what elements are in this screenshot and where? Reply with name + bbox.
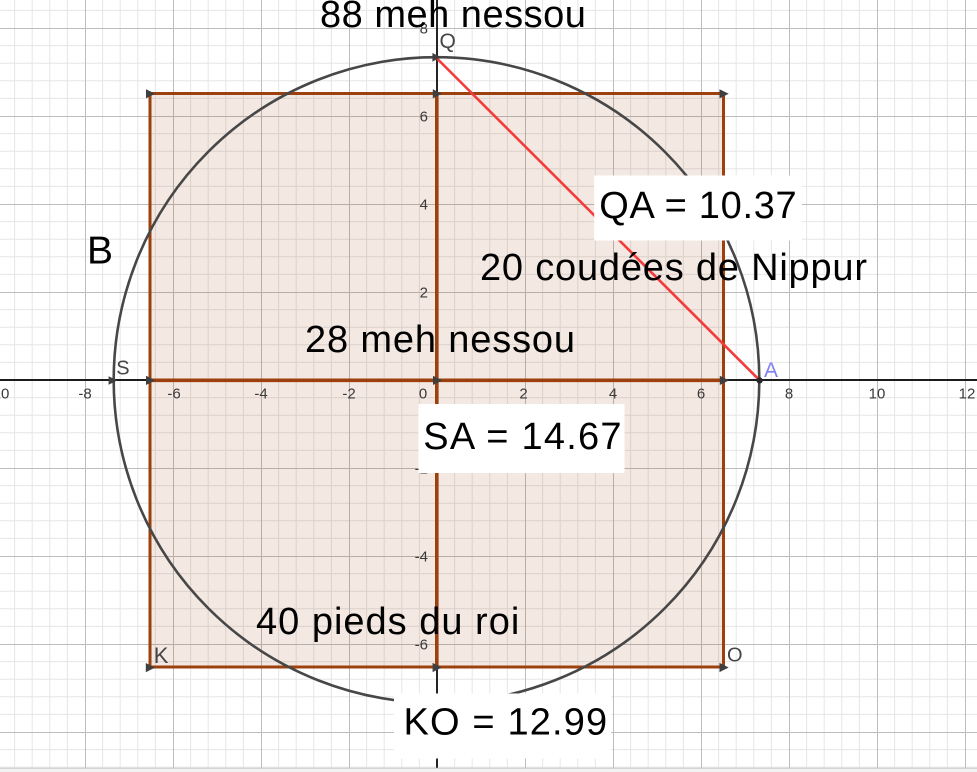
svg-text:40 pieds du roi: 40 pieds du roi — [256, 601, 520, 643]
svg-text:8: 8 — [785, 386, 793, 403]
svg-text:4: 4 — [609, 386, 617, 403]
svg-text:-8: -8 — [78, 386, 91, 403]
svg-text:-6: -6 — [167, 386, 180, 403]
svg-text:B: B — [87, 229, 113, 272]
svg-text:12: 12 — [959, 386, 976, 403]
svg-text:2: 2 — [420, 285, 428, 302]
svg-text:O: O — [727, 644, 743, 666]
svg-text:0: 0 — [419, 386, 427, 403]
svg-text:6: 6 — [697, 386, 705, 403]
svg-text:-4: -4 — [254, 386, 267, 403]
svg-text:28 meh nessou: 28 meh nessou — [305, 319, 576, 361]
svg-text:S: S — [116, 357, 129, 379]
svg-text:4: 4 — [420, 197, 428, 214]
svg-text:2: 2 — [519, 386, 527, 403]
svg-text:-2: -2 — [342, 386, 355, 403]
svg-text:A: A — [764, 359, 778, 382]
svg-text:-4: -4 — [415, 549, 428, 566]
svg-text:10: 10 — [869, 386, 886, 403]
svg-text:88 meh nessou: 88 meh nessou — [320, 0, 586, 36]
svg-text:6: 6 — [420, 109, 428, 126]
svg-text:K: K — [154, 643, 169, 668]
svg-text:QA = 10.37: QA = 10.37 — [599, 185, 797, 227]
svg-text:KO = 12.99: KO = 12.99 — [404, 701, 609, 743]
svg-text:-10: -10 — [0, 386, 9, 403]
svg-text:SA = 14.67: SA = 14.67 — [423, 416, 623, 458]
svg-text:20 coudées de Nippur: 20 coudées de Nippur — [480, 247, 868, 289]
